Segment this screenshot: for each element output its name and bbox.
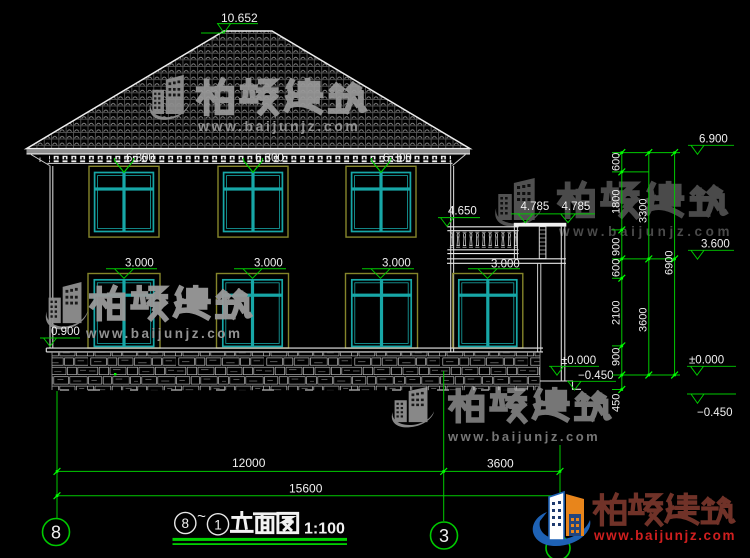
svg-text:4.650: 4.650 xyxy=(448,206,477,218)
svg-text:−0.450: −0.450 xyxy=(578,370,614,382)
svg-text:2100: 2100 xyxy=(611,301,623,325)
svg-text:3.000: 3.000 xyxy=(382,258,411,270)
svg-text:900: 900 xyxy=(611,348,623,366)
svg-text:www.baijunjz.com: www.baijunjz.com xyxy=(593,528,736,543)
svg-text:6.900: 6.900 xyxy=(699,134,728,146)
svg-text:6.300: 6.300 xyxy=(126,153,155,165)
svg-text:www.baijunjz.com: www.baijunjz.com xyxy=(197,118,360,134)
svg-text:600: 600 xyxy=(611,153,623,171)
svg-text:www.baijunjz.com: www.baijunjz.com xyxy=(447,429,600,444)
svg-text:900: 900 xyxy=(611,238,623,256)
svg-text:4.785: 4.785 xyxy=(521,201,550,213)
svg-text:3.000: 3.000 xyxy=(491,259,520,271)
svg-text:3.000: 3.000 xyxy=(125,258,154,270)
svg-text:www.baijunjz.com: www.baijunjz.com xyxy=(558,224,733,239)
svg-text:0.900: 0.900 xyxy=(51,326,80,338)
svg-text:4.785: 4.785 xyxy=(562,201,591,213)
svg-text:±0.000: ±0.000 xyxy=(561,355,596,367)
svg-text:3.000: 3.000 xyxy=(254,258,283,270)
svg-text:3300: 3300 xyxy=(638,199,650,223)
svg-text:1800: 1800 xyxy=(611,190,623,214)
svg-text:3600: 3600 xyxy=(638,308,650,332)
svg-text:15600: 15600 xyxy=(289,482,323,496)
svg-text:10.652: 10.652 xyxy=(221,11,258,25)
svg-text:www.baijunjz.com: www.baijunjz.com xyxy=(85,326,243,341)
svg-text:1: 1 xyxy=(214,517,222,532)
svg-text:6.300: 6.300 xyxy=(383,153,412,165)
svg-text:6900: 6900 xyxy=(664,251,676,275)
svg-text:~: ~ xyxy=(197,508,206,525)
svg-text:8: 8 xyxy=(182,516,190,531)
svg-text:±0.000: ±0.000 xyxy=(689,355,724,367)
svg-text:8: 8 xyxy=(51,523,61,543)
svg-text:3: 3 xyxy=(439,526,449,546)
svg-text:6.300: 6.300 xyxy=(255,153,284,165)
svg-text:600: 600 xyxy=(611,259,623,277)
svg-text:1:100: 1:100 xyxy=(304,521,345,538)
svg-text:3600: 3600 xyxy=(487,457,514,471)
svg-text:−0.450: −0.450 xyxy=(697,407,733,419)
svg-text:12000: 12000 xyxy=(232,456,266,470)
svg-text:450: 450 xyxy=(611,394,623,412)
svg-text:3.600: 3.600 xyxy=(701,239,730,251)
